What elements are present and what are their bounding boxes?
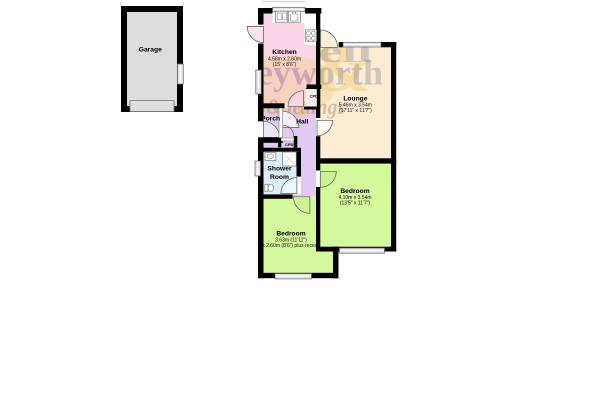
svg-text:Lounge: Lounge	[343, 96, 367, 103]
svg-text:Kitchen: Kitchen	[272, 49, 297, 56]
svg-text:Room: Room	[270, 174, 289, 181]
svg-text:Porch: Porch	[261, 116, 280, 123]
svg-text:Shower: Shower	[267, 165, 292, 172]
svg-text:Garage: Garage	[139, 47, 162, 54]
svg-text:(13'5" x 11'7"): (13'5" x 11'7")	[340, 200, 371, 206]
svg-text:CPD: CPD	[285, 142, 294, 147]
svg-text:x 2.60m (8'6") plus recess: x 2.60m (8'6") plus recess	[262, 243, 320, 249]
svg-text:CPD: CPD	[310, 94, 319, 99]
svg-text:Hall: Hall	[296, 119, 308, 126]
svg-text:(15' x 8'6"): (15' x 8'6")	[273, 62, 297, 68]
svg-text:(17'11" x 11'7"): (17'11" x 11'7")	[339, 108, 372, 114]
